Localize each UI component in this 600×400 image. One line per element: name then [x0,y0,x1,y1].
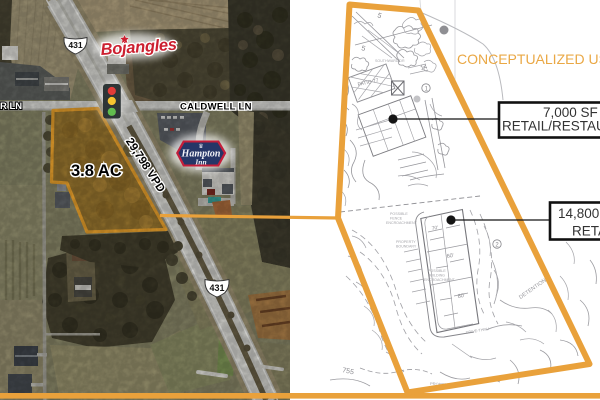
svg-text:FENCE: FENCE [390,217,403,221]
svg-text:SOUTHWARD DR: SOUTHWARD DR [375,59,405,63]
svg-text:431: 431 [68,40,83,50]
svg-text:14,800 SF: 14,800 SF [558,206,600,221]
svg-text:BOUNDARY: BOUNDARY [396,245,417,249]
svg-text:70': 70' [431,225,439,232]
svg-text:POSSIBLE: POSSIBLE [428,269,446,273]
svg-text:ENCROACHMENT: ENCROACHMENT [386,221,418,225]
svg-text:R LN: R LN [0,101,22,112]
svg-text:3.8 AC: 3.8 AC [71,162,122,180]
svg-text:PROPERTY: PROPERTY [396,240,416,244]
svg-text:431: 431 [209,283,224,293]
svg-text:60': 60' [446,253,454,260]
svg-text:80': 80' [457,293,465,300]
svg-text:CALDWELL LN: CALDWELL LN [180,102,252,113]
svg-text:RETAIL: RETAIL [572,224,600,239]
svg-text:CONCEPTUALIZED USE: CONCEPTUALIZED USE [457,51,600,67]
svg-text:BUILDING: BUILDING [428,274,445,278]
svg-text:RETAIL/RESTAURANT: RETAIL/RESTAURANT [502,119,600,134]
svg-text:ENCROACHMENT: ENCROACHMENT [424,278,456,282]
svg-text:Inn: Inn [194,158,206,167]
svg-text:POSSIBLE: POSSIBLE [390,212,408,216]
